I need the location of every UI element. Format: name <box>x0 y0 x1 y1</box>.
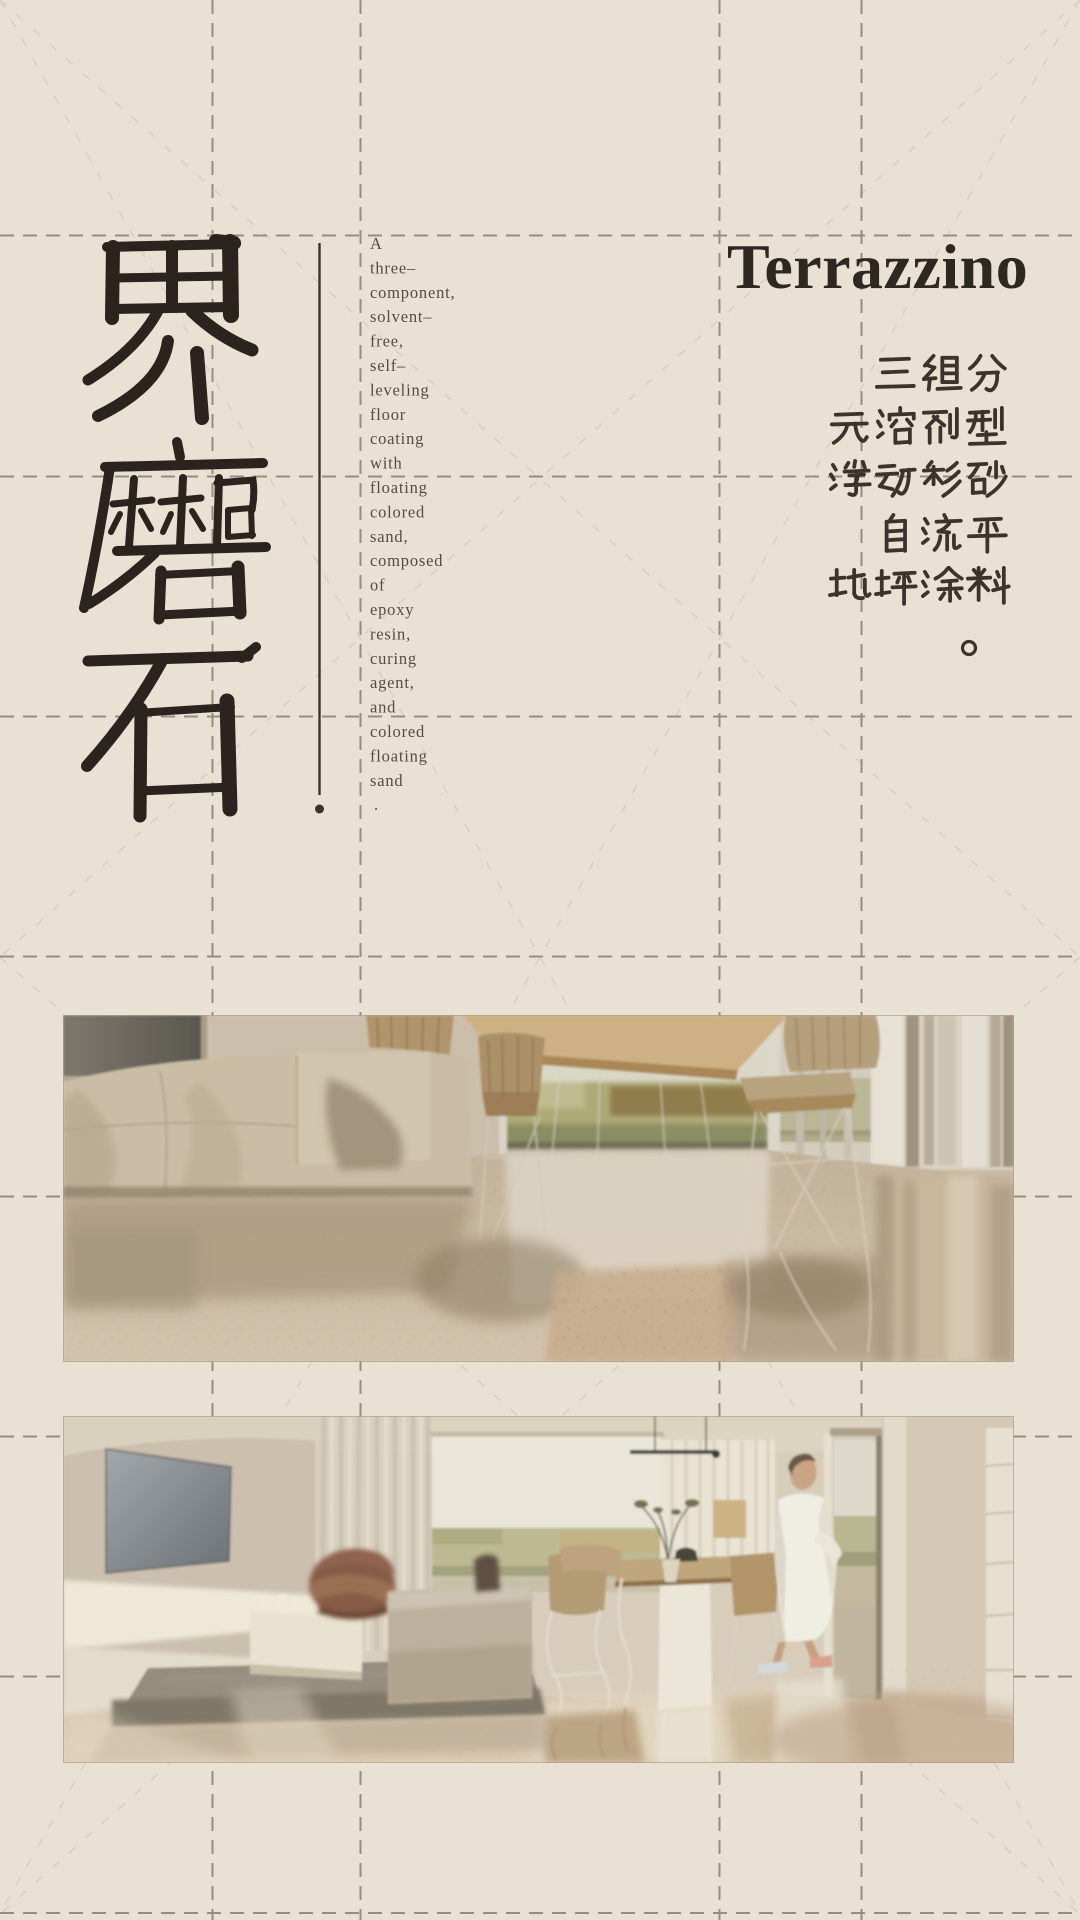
svg-text:composed: composed <box>370 551 443 570</box>
svg-text:free,: free, <box>370 332 404 351</box>
svg-text:self–: self– <box>370 356 406 375</box>
svg-text:floating: floating <box>370 478 428 497</box>
svg-text:Terrazzino: Terrazzino <box>727 231 1028 302</box>
svg-text:and: and <box>370 698 396 717</box>
svg-text:three–: three– <box>370 258 416 277</box>
svg-text:agent,: agent, <box>370 673 415 692</box>
svg-text:epoxy: epoxy <box>370 600 414 619</box>
svg-text:A: A <box>370 234 383 253</box>
svg-text:of: of <box>370 576 385 595</box>
svg-text:sand: sand <box>370 771 403 790</box>
svg-text:resin,: resin, <box>370 624 411 643</box>
svg-text:with: with <box>370 454 403 473</box>
svg-text:solvent–: solvent– <box>370 307 432 326</box>
svg-text:coating: coating <box>370 429 424 448</box>
svg-text:leveling: leveling <box>370 380 430 399</box>
svg-text:colored: colored <box>370 502 425 521</box>
svg-text:component,: component, <box>370 283 455 302</box>
svg-text:floating: floating <box>370 746 428 765</box>
svg-text:floor: floor <box>370 405 406 424</box>
svg-text:colored: colored <box>370 722 425 741</box>
svg-text:.: . <box>374 795 379 814</box>
svg-text:curing: curing <box>370 649 417 668</box>
svg-text:sand,: sand, <box>370 527 408 546</box>
